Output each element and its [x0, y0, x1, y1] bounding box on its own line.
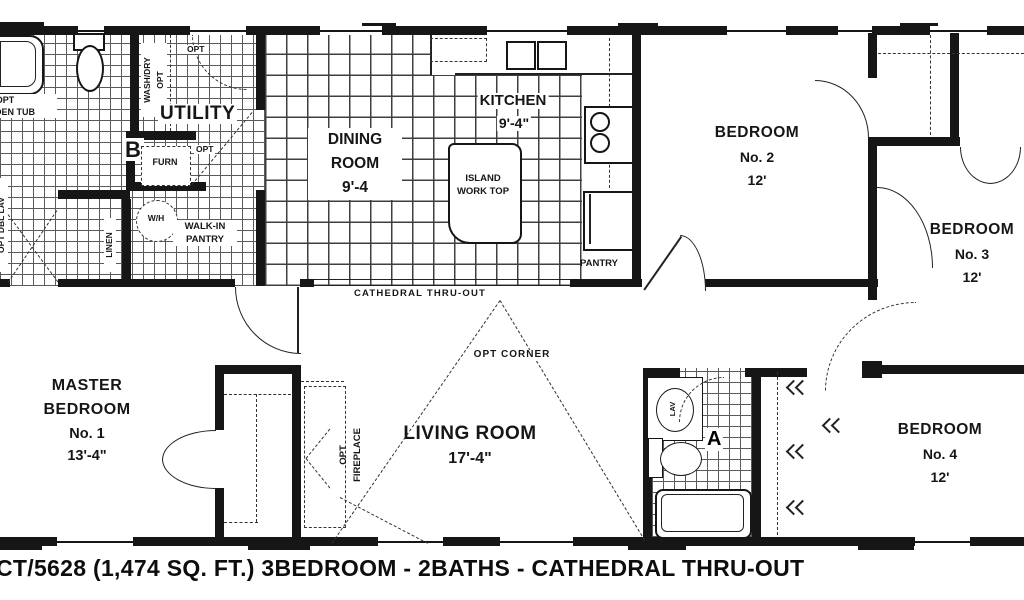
bedroom4-label: BEDROOM [898, 422, 982, 438]
closet-rod-line [878, 53, 1024, 54]
interior-wall [752, 368, 761, 537]
closet-shelf-line [224, 522, 258, 523]
garden-tub-inner [0, 41, 36, 87]
interior-wall [643, 368, 680, 377]
interior-wall [705, 279, 878, 287]
closet-shelf-line [224, 394, 291, 395]
closet-door-arc [990, 147, 1021, 184]
fridge-door-line [589, 194, 591, 244]
kitchen-sink-basin [537, 41, 567, 70]
master-dim: 13'-4" [67, 449, 106, 464]
garden-tub-label: OPT GARDEN TUB [0, 94, 57, 118]
interior-wall [950, 33, 959, 146]
toilet-bowl [76, 45, 104, 92]
toilet-bowl [660, 442, 702, 476]
hanger-mark [795, 444, 811, 460]
hanger-mark [795, 380, 811, 396]
interior-wall [122, 199, 131, 286]
half-wall [314, 279, 570, 286]
bedroom3-dim: 12' [963, 270, 982, 285]
living-dim: 17'-4" [448, 451, 491, 468]
furnace-label: FURN [153, 158, 178, 167]
plan-caption: CT/5628 (1,474 SQ. FT.) 3BEDROOM - 2BATH… [0, 555, 804, 582]
window [190, 26, 246, 35]
door-arc [235, 287, 301, 354]
door-arc [877, 187, 933, 268]
counter-edge [455, 73, 632, 75]
opt-cabinet-dashed [430, 38, 487, 62]
door-leaf [297, 287, 299, 353]
hanger-mark [795, 500, 811, 516]
fireplace-dash-line [301, 381, 344, 382]
wall-cap [0, 540, 42, 550]
dashed-door-arc [825, 302, 916, 391]
water-heater-label: W/H [148, 214, 165, 223]
window [727, 26, 786, 35]
cathedral-label: CATHEDRAL THRU-OUT [352, 289, 488, 299]
walkin-pantry-label: WALK-IN PANTRY [173, 220, 237, 246]
floor-plan: OPT GARDEN TUB B OPT DBL LAV WASH/DRY OP… [0, 0, 1024, 600]
kitchen-label: KITCHEN [478, 93, 549, 109]
opt-door-label: OPT [185, 45, 206, 54]
interior-wall [256, 190, 265, 286]
bedroom3-no: No. 3 [955, 247, 989, 262]
fireplace-label: OPT FIREPLACE [337, 400, 367, 510]
interior-wall [868, 137, 960, 146]
bedroom4-dim: 12' [931, 470, 950, 485]
pantry-opt-label: OPT [194, 145, 215, 154]
bedroom4-no: No. 4 [923, 447, 957, 462]
master-no: No. 1 [69, 427, 104, 442]
linen-label: LINEN [104, 218, 116, 272]
hanger-mark [831, 418, 847, 434]
interior-wall [745, 368, 807, 377]
closet-rod-line [256, 394, 257, 522]
interior-wall [868, 137, 877, 300]
door-arc [680, 235, 706, 291]
door-leaf [643, 236, 681, 290]
bedroom2-dim: 12' [748, 173, 767, 188]
bath-a-label: A [705, 428, 723, 451]
interior-wall [300, 279, 314, 287]
window [500, 537, 573, 546]
dining-label: DINING ROOM 9'-4 [308, 128, 402, 200]
interior-wall [570, 279, 642, 287]
interior-wall [58, 279, 235, 287]
bathtub-inner [661, 494, 744, 532]
door-arc [815, 80, 869, 138]
window [378, 537, 443, 546]
master-label1: MASTER [52, 378, 123, 395]
wall-cap [248, 540, 310, 550]
interior-wall [256, 33, 265, 110]
window [915, 537, 970, 546]
window [487, 26, 567, 35]
interior-wall [58, 190, 130, 199]
kitchen-dim: 9'-4" [497, 116, 531, 131]
interior-wall [215, 488, 224, 537]
interior-wall [215, 365, 301, 374]
bedroom2-label: BEDROOM [715, 125, 799, 141]
living-label: LIVING ROOM [403, 424, 536, 444]
opt-corner-label: OPT CORNER [472, 350, 553, 361]
interior-wall [130, 33, 139, 133]
closet-divider [930, 35, 931, 135]
bedroom2-no: No. 2 [740, 150, 774, 165]
pantry-label: PANTRY [580, 259, 618, 269]
interior-wall [292, 365, 301, 537]
interior-wall [868, 33, 877, 78]
utility-label: UTILITY [158, 104, 237, 124]
wall-cap [0, 22, 44, 35]
closet-rod-line [777, 372, 778, 535]
window [57, 537, 133, 546]
opt-dbl-lav-label: OPT DBL LAV [0, 178, 8, 272]
closet-door-arc [960, 147, 991, 184]
window [838, 26, 872, 35]
stove-burner [590, 112, 610, 132]
kitchen-sink-basin [506, 41, 536, 70]
closet-door-arc [162, 430, 216, 460]
interior-wall [215, 365, 224, 430]
island-label: ISLAND WORK TOP [451, 172, 515, 198]
window [320, 26, 382, 35]
closet-door-arc [162, 459, 216, 489]
wall-cap [858, 540, 914, 550]
wall-cap [628, 540, 686, 550]
master-label2: BEDROOM [43, 402, 130, 419]
stove-burner [590, 133, 610, 153]
bedroom3-label: BEDROOM [930, 222, 1014, 238]
opt-corner-line [500, 300, 645, 540]
